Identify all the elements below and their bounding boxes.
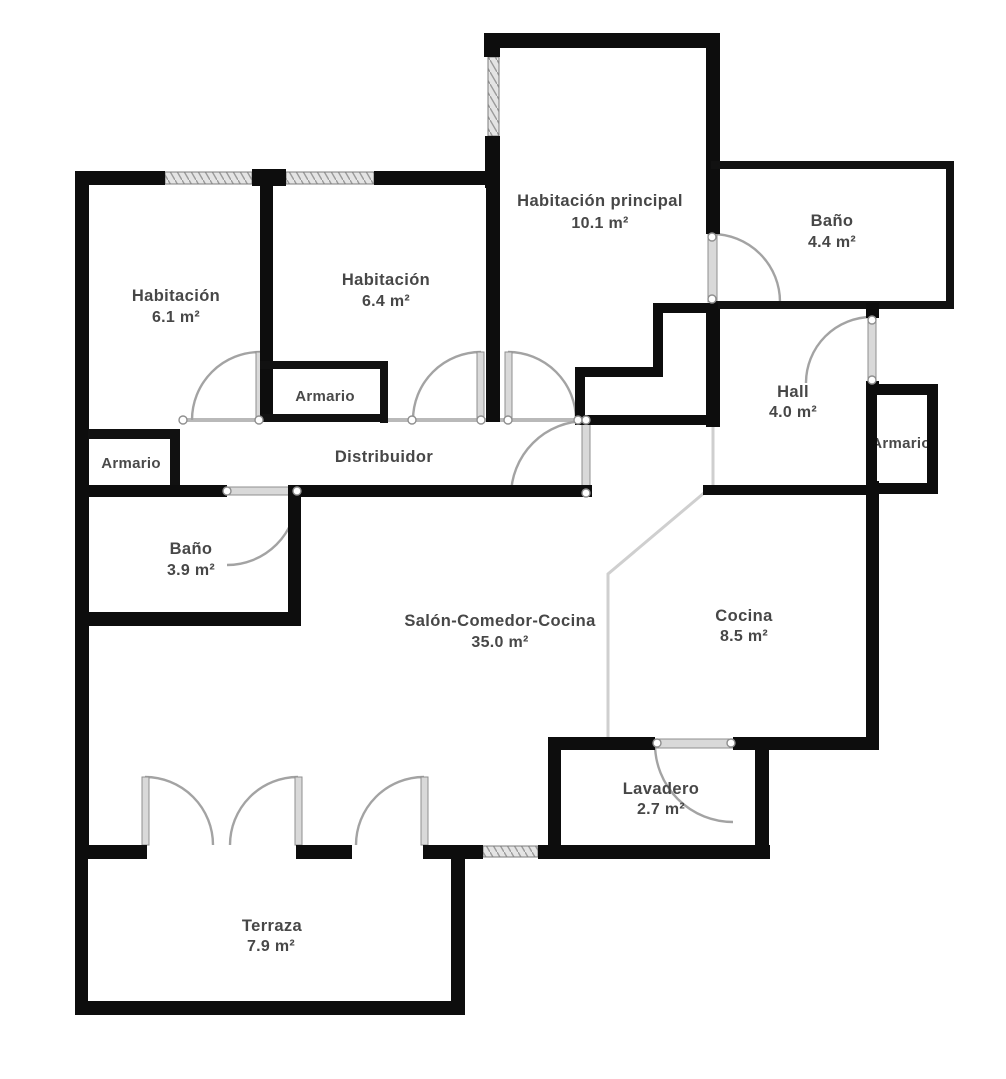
room-label-cocina: Cocina [715, 607, 773, 625]
door-arc-terraza-french-left [145, 777, 213, 845]
room-label-habitacion-61: Habitación [132, 287, 220, 305]
room-area-lavadero: 2.7 m² [637, 801, 685, 818]
room-area-cocina: 8.5 m² [720, 628, 768, 645]
floor-plan-svg: Armario [0, 0, 1006, 1079]
room-label-habitacion-principal: Habitación principal [517, 192, 683, 210]
window-salon [483, 846, 538, 857]
room-label-bano-39: Baño [170, 540, 213, 558]
door-arc-terraza-single [356, 777, 424, 845]
room-area-habitacion-61: 6.1 m² [152, 309, 200, 326]
room-area-bano-44: 4.4 m² [808, 234, 856, 251]
room-label-bano-44: Baño [811, 212, 854, 230]
room-label-distribuidor: Distribuidor [335, 448, 433, 466]
window-habitacion-61 [165, 172, 252, 184]
room-label-armario-right: Armario [871, 435, 931, 452]
room-label-hall: Hall [777, 383, 809, 401]
door-leaf-distribuidor [582, 418, 590, 496]
door-leaf-terraza-single [421, 777, 428, 845]
room-label-armario-64: Armario [295, 388, 355, 405]
room-label-habitacion-64: Habitación [342, 271, 430, 289]
room-area-hall: 4.0 m² [769, 404, 817, 421]
door-leaf-habitacion-64 [477, 352, 484, 420]
room-area-bano-39: 3.9 m² [167, 562, 215, 579]
room-area-habitacion-64: 6.4 m² [362, 293, 410, 310]
door-leaf-bano-44 [708, 234, 717, 302]
floor-plan-canvas: Armario [0, 0, 1006, 1079]
room-label-armario-left: Armario [101, 455, 161, 472]
room-label-salon: Salón-Comedor-Cocina [404, 612, 596, 630]
door-threshold-lavadero [655, 739, 733, 748]
door-arc-habitacion-64 [413, 352, 481, 420]
door-leaf-bano-39 [227, 487, 297, 495]
door-arc-distribuidor [511, 421, 586, 496]
door-arc-entrance [806, 317, 872, 383]
door-arc-bano-44 [712, 234, 780, 302]
door-arc-terraza-french-right [230, 777, 298, 845]
window-habitacion-64 [286, 172, 374, 184]
door-leaf-french-left [142, 777, 149, 845]
door-leaf-french-right [295, 777, 302, 845]
room-label-terraza: Terraza [242, 917, 303, 935]
door-arc-habitacion-principal [508, 352, 576, 420]
door-leaf-habitacion-principal [505, 352, 512, 420]
door-leaf-entrance [868, 317, 876, 383]
open-boundary-lines [181, 420, 713, 738]
room-area-salon: 35.0 m² [471, 634, 528, 651]
closet-right-label-group: Armario [871, 435, 931, 452]
room-label-lavadero: Lavadero [623, 780, 700, 798]
room-area-habitacion-principal: 10.1 m² [571, 215, 628, 232]
door-arc-bano-39 [227, 495, 297, 565]
window-habitacion-principal [488, 57, 499, 136]
room-area-terraza: 7.9 m² [247, 938, 295, 955]
door-arc-habitacion-61 [192, 352, 260, 420]
